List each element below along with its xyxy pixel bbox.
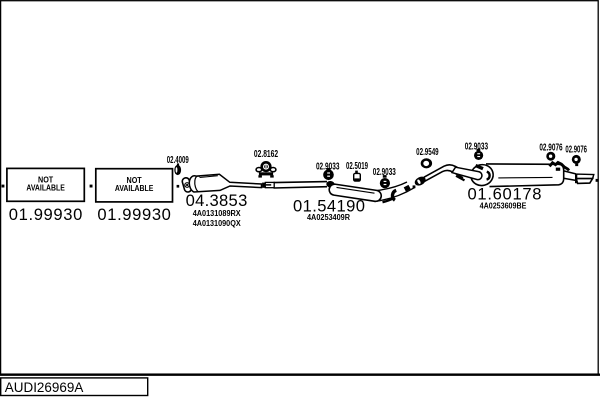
svg-text:AVAILABLE: AVAILABLE [115,184,154,193]
svg-text:02.9549: 02.9549 [416,147,439,158]
svg-text:04.3853: 04.3853 [186,191,248,210]
svg-text:02.9076: 02.9076 [565,144,587,155]
svg-text:AVAILABLE: AVAILABLE [26,184,65,193]
svg-text:01.60178: 01.60178 [468,184,542,203]
svg-text:01.99930: 01.99930 [9,205,83,224]
svg-text:02.5019: 02.5019 [346,161,368,172]
svg-text:4A0131090QX: 4A0131090QX [193,219,242,228]
svg-text:4A0131089RX: 4A0131089RX [193,209,242,218]
svg-text:4A0253609BE: 4A0253609BE [480,202,527,211]
svg-text:02.8162: 02.8162 [254,149,279,160]
svg-text:01.99930: 01.99930 [97,205,170,224]
svg-text:4A0253409R: 4A0253409R [307,213,350,222]
svg-text:AUDI26969A: AUDI26969A [5,380,84,396]
